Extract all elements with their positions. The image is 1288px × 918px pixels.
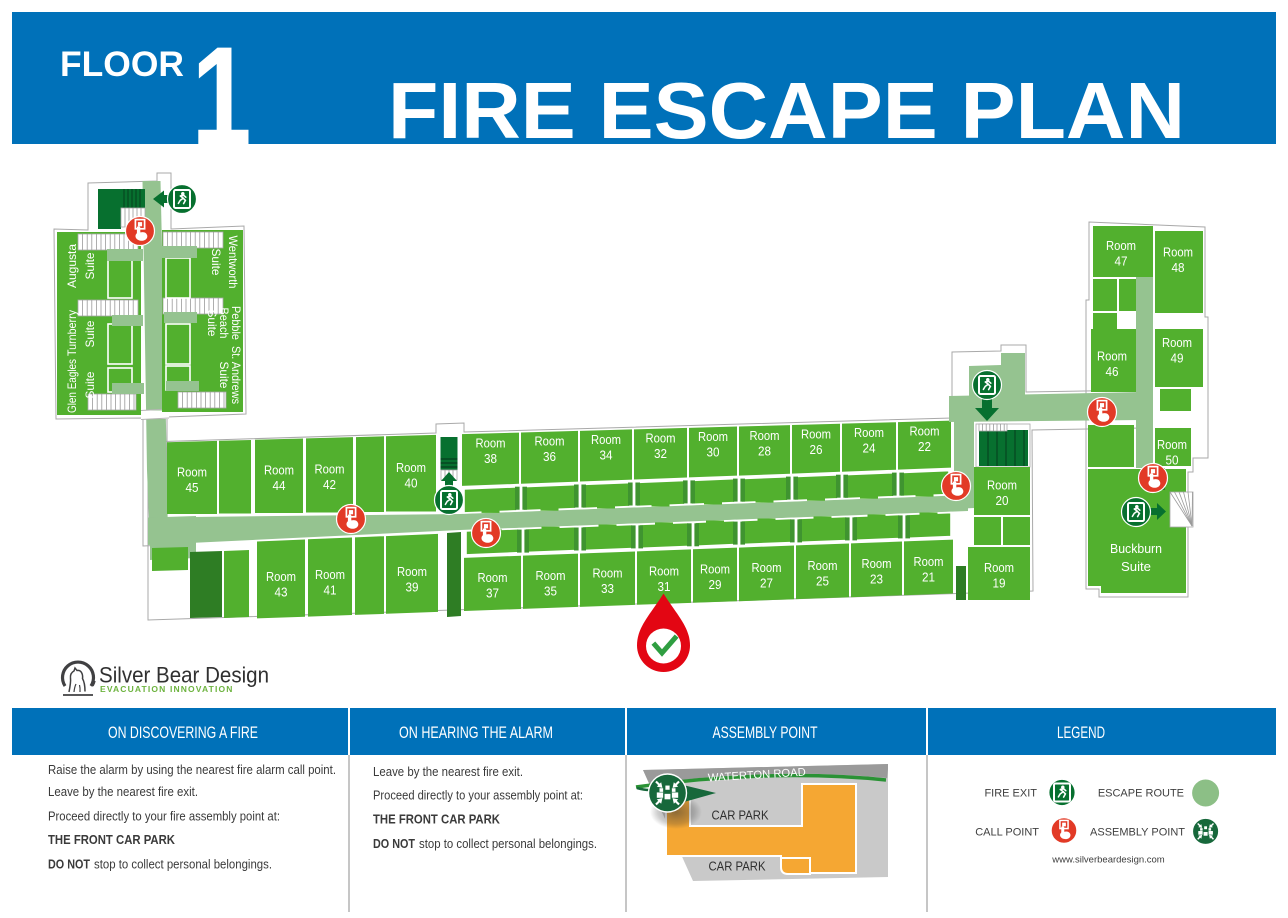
svg-text:29: 29 [709,577,722,592]
svg-text:Room: Room [591,432,621,447]
svg-text:Glen Eagles: Glen Eagles [65,359,79,413]
svg-text:Proceed directly to your assem: Proceed directly to your assembly point … [373,789,583,803]
svg-text:Room: Room [397,564,427,579]
svg-text:Room: Room [808,558,838,573]
svg-text:24: 24 [863,440,876,455]
svg-text:THE FRONT CAR PARK: THE FRONT CAR PARK [48,833,175,847]
svg-text:Room: Room [396,460,426,475]
svg-text:Room: Room [1097,349,1127,364]
svg-text:Room: Room [1163,245,1193,260]
svg-text:34: 34 [600,448,613,463]
svg-text:22: 22 [918,439,931,454]
svg-text:40: 40 [405,476,418,491]
svg-text:32: 32 [654,446,667,461]
svg-text:1: 1 [192,17,252,174]
svg-text:45: 45 [186,480,199,495]
svg-text:Room: Room [266,569,296,584]
svg-text:Room: Room [315,567,345,582]
svg-text:25: 25 [816,573,829,588]
svg-text:Room: Room [854,425,884,440]
svg-text:Room: Room [536,568,566,583]
svg-text:Buckburn: Buckburn [1110,541,1162,556]
svg-text:EVACUATION INNOVATION: EVACUATION INNOVATION [100,684,234,694]
svg-text:44: 44 [273,478,286,493]
svg-text:DO NOT: DO NOT [48,858,90,872]
svg-text:FIRE ESCAPE PLAN: FIRE ESCAPE PLAN [388,66,1185,155]
svg-text:Room: Room [649,564,679,579]
svg-text:Room: Room [1162,335,1192,350]
svg-text:Suite: Suite [217,362,231,389]
svg-text:Proceed directly to your fire: Proceed directly to your fire assembly p… [48,810,280,824]
svg-text:Room: Room [476,435,506,450]
svg-text:ASSEMBLY POINT: ASSEMBLY POINT [1090,827,1185,839]
svg-text:ASSEMBLY POINT: ASSEMBLY POINT [713,723,818,742]
svg-text:Room: Room [1106,238,1136,253]
svg-text:46: 46 [1106,364,1119,379]
svg-text:Turnberry: Turnberry [65,310,79,356]
svg-text:Room: Room [315,462,345,477]
svg-text:Augusta: Augusta [65,244,79,288]
svg-text:Suite: Suite [205,310,219,337]
svg-text:Raise the alarm by using the n: Raise the alarm by using the nearest fir… [48,763,336,777]
svg-text:Room: Room [752,560,782,575]
svg-text:49: 49 [1171,351,1184,366]
svg-text:21: 21 [922,569,935,584]
svg-text:Room: Room [478,570,508,585]
svg-text:Wentworth: Wentworth [226,236,240,289]
svg-text:41: 41 [324,583,337,598]
svg-text:stop to collect personal belon: stop to collect personal belongings. [419,837,597,851]
svg-text:31: 31 [658,579,671,594]
svg-text:Room: Room [646,431,676,446]
svg-text:CAR PARK: CAR PARK [709,860,767,874]
svg-text:LEGEND: LEGEND [1057,723,1105,742]
svg-text:Suite: Suite [83,371,97,398]
svg-text:30: 30 [707,445,720,460]
svg-text:ESCAPE ROUTE: ESCAPE ROUTE [1098,788,1184,800]
svg-text:DO NOT: DO NOT [373,837,415,851]
svg-text:27: 27 [760,575,773,590]
svg-text:CAR PARK: CAR PARK [712,809,770,823]
svg-text:FIRE EXIT: FIRE EXIT [984,788,1037,800]
svg-text:38: 38 [484,451,497,466]
svg-text:CALL POINT: CALL POINT [975,827,1039,839]
svg-text:43: 43 [275,585,288,600]
svg-text:Room: Room [750,428,780,443]
svg-text:Room: Room [910,423,940,438]
svg-text:42: 42 [323,477,336,492]
svg-text:Room: Room [700,562,730,577]
svg-text:Suite: Suite [83,252,97,279]
svg-text:50: 50 [1166,453,1179,468]
svg-text:28: 28 [758,443,771,458]
svg-text:Leave by the nearest fire exit: Leave by the nearest fire exit. [48,785,198,799]
svg-text:26: 26 [810,442,823,457]
svg-text:Room: Room [264,463,294,478]
svg-text:47: 47 [1115,254,1128,269]
svg-text:FLOOR: FLOOR [60,45,184,84]
svg-text:Room: Room [535,434,565,449]
svg-text:Room: Room [177,464,207,479]
svg-text:23: 23 [870,571,883,586]
svg-text:THE FRONT CAR PARK: THE FRONT CAR PARK [373,813,500,827]
svg-text:48: 48 [1172,260,1185,275]
svg-text:Suite: Suite [1121,559,1151,574]
svg-text:Room: Room [987,478,1017,493]
svg-text:Room: Room [1157,437,1187,452]
svg-text:Room: Room [984,560,1014,575]
svg-text:Room: Room [698,429,728,444]
svg-text:35: 35 [544,583,557,598]
svg-text:39: 39 [406,579,419,594]
svg-text:ON DISCOVERING A FIRE: ON DISCOVERING A FIRE [108,723,258,742]
svg-text:stop to collect personal belon: stop to collect personal belongings. [94,858,272,872]
svg-text:www.silverbeardesign.com: www.silverbeardesign.com [1051,855,1165,866]
svg-text:Room: Room [862,556,892,571]
svg-text:ON HEARING THE ALARM: ON HEARING THE ALARM [399,723,553,742]
svg-text:Room: Room [914,554,944,569]
svg-text:Room: Room [593,566,623,581]
svg-text:33: 33 [601,581,614,596]
svg-text:20: 20 [996,493,1009,508]
svg-text:Room: Room [801,426,831,441]
svg-text:19: 19 [993,576,1006,591]
svg-text:37: 37 [486,585,499,600]
svg-text:Leave by the nearest fire exit: Leave by the nearest fire exit. [373,765,523,779]
svg-text:Suite: Suite [209,249,223,276]
svg-text:Suite: Suite [83,320,97,347]
svg-text:36: 36 [543,449,556,464]
